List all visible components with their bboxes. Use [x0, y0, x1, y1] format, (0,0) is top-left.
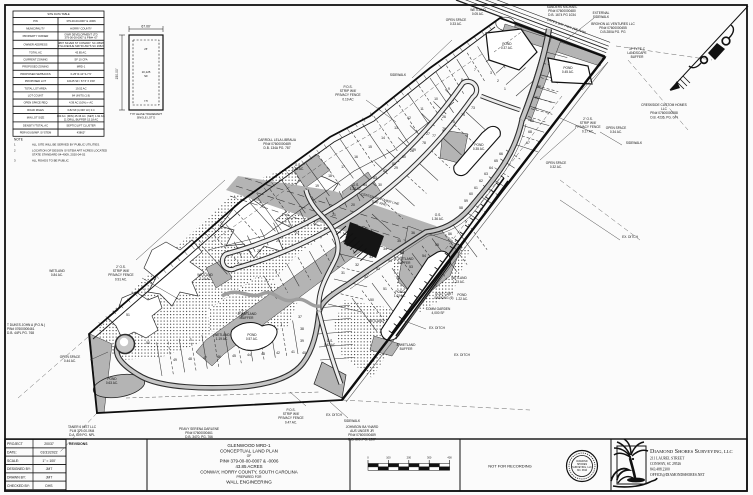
svg-text:WALL ENGINEERING: WALL ENGINEERING — [226, 480, 272, 485]
svg-text:61: 61 — [474, 186, 478, 190]
svg-text:0.37 AC.: 0.37 AC. — [501, 46, 513, 50]
svg-text:SCALE:: SCALE: — [7, 459, 19, 463]
svg-text:SEPTIC/LIFT CLUSTER: SEPTIC/LIFT CLUSTER — [66, 124, 95, 128]
svg-text:52: 52 — [396, 276, 400, 280]
svg-text:84 UNITS (1.9): 84 UNITS (1.9) — [72, 94, 90, 98]
svg-text:51: 51 — [126, 313, 130, 317]
svg-text:0.47 AC.: 0.47 AC. — [285, 420, 297, 424]
svg-text:54: 54 — [422, 254, 426, 258]
svg-text:46: 46 — [217, 355, 221, 359]
svg-text:2: 2 — [497, 79, 499, 83]
svg-text:SITE DATA TABLE: SITE DATA TABLE — [47, 12, 70, 16]
svg-text:EX. DITCH: EX. DITCH — [622, 235, 638, 239]
svg-text:82: 82 — [383, 169, 387, 173]
svg-text:47: 47 — [203, 356, 207, 360]
svg-text:PROPOSED LOT: PROPOSED LOT — [25, 79, 47, 83]
svg-text:69: 69 — [530, 119, 534, 123]
svg-text:0.84 AC.: 0.84 AC. — [51, 273, 63, 277]
svg-text:20037: 20037 — [44, 442, 54, 446]
svg-text:29: 29 — [394, 166, 398, 170]
svg-text:SF: SF — [144, 74, 148, 78]
svg-text:15: 15 — [368, 145, 372, 149]
svg-text:84: 84 — [363, 183, 367, 187]
svg-text:63: 63 — [484, 172, 488, 176]
svg-text:80: 80 — [402, 155, 406, 159]
svg-text:48: 48 — [188, 357, 192, 361]
svg-text:14: 14 — [381, 136, 385, 140]
svg-text:53: 53 — [376, 267, 380, 271]
svg-text:12: 12 — [407, 116, 411, 120]
svg-text:45: 45 — [232, 354, 236, 358]
svg-text:D.A. 609 PG. NPL: D.A. 609 PG. NPL — [69, 433, 95, 437]
svg-text:22: 22 — [313, 221, 317, 225]
svg-text:D.B. 44PL PG. 768: D.B. 44PL PG. 768 — [7, 331, 34, 335]
svg-text:PARKING (6): PARKING (6) — [435, 296, 454, 300]
svg-text:211 LAUREL STREET: 211 LAUREL STREET — [650, 457, 685, 461]
svg-text:0.42 AC.: 0.42 AC. — [324, 343, 336, 347]
svg-text:0.33 AC.: 0.33 AC. — [450, 22, 462, 26]
svg-text:0.17 AC.: 0.17 AC. — [582, 129, 594, 133]
svg-text:0.78 AC.: 0.78 AC. — [292, 167, 304, 171]
svg-text:77: 77 — [432, 134, 436, 138]
svg-text:18: 18 — [328, 174, 332, 178]
svg-text:64: 64 — [489, 166, 493, 170]
svg-text:CONWAY, HORRY COUNTY, SOUTH CA: CONWAY, HORRY COUNTY, SOUTH CAROLINA — [200, 470, 298, 475]
svg-text:36: 36 — [411, 231, 415, 235]
svg-text:60: 60 — [469, 192, 473, 196]
svg-text:LOT COUNT: LOT COUNT — [28, 94, 44, 98]
svg-text:43: 43 — [261, 352, 265, 356]
svg-text:843.488.2300: 843.488.2300 — [650, 468, 670, 472]
svg-text:68: 68 — [528, 130, 532, 134]
svg-text:0.44 AC.: 0.44 AC. — [64, 359, 76, 363]
svg-text:PIN: PIN — [33, 19, 38, 23]
svg-text:24: 24 — [276, 239, 280, 243]
svg-text:56: 56 — [448, 232, 452, 236]
svg-text:1.22 AC.: 1.22 AC. — [456, 297, 468, 301]
svg-text:0.05 AC.: 0.05 AC. — [472, 12, 484, 16]
svg-text:3: 3 — [490, 71, 492, 75]
svg-text:67.00': 67.00' — [141, 25, 150, 29]
svg-text:19: 19 — [315, 184, 319, 188]
svg-text:50: 50 — [370, 298, 374, 302]
svg-text:TYP LEASE TRADEMART: TYP LEASE TRADEMART — [130, 112, 162, 116]
svg-text:SIDEWALK: SIDEWALK — [390, 73, 407, 77]
svg-text:PROPOSED SETBACKS: PROPOSED SETBACKS — [20, 72, 51, 76]
svg-text:CONCEPTUAL LAND PLAN: CONCEPTUAL LAND PLAN — [220, 449, 278, 454]
svg-text:17: 17 — [341, 165, 345, 169]
svg-text:11: 11 — [420, 107, 424, 111]
svg-text:PROJECT: PROJECT — [7, 442, 23, 446]
svg-text:ALL ROADS TO BE PUBLIC: ALL ROADS TO BE PUBLIC — [32, 158, 69, 162]
svg-text:DRAWN BY:: DRAWN BY: — [7, 475, 26, 479]
svg-text:D.B. 4236, PG. 0/H: D.B. 4236, PG. 0/H — [650, 115, 678, 119]
svg-text:4.39 AC (10%) + AC: 4.39 AC (10%) + AC — [69, 101, 93, 105]
svg-text:TOTAL AC: TOTAL AC — [29, 50, 42, 54]
svg-text:59: 59 — [464, 199, 468, 203]
svg-text:ALL SITE WILL BE SERVED BY PUB: ALL SITE WILL BE SERVED BY PUBLIC UTILIT… — [32, 142, 100, 146]
svg-text:SIDEWALK: SIDEWALK — [344, 419, 361, 423]
svg-text:25: 25 — [257, 249, 261, 253]
svg-text:10: 10 — [434, 97, 438, 101]
svg-text:DESIGNED BY:: DESIGNED BY: — [7, 467, 31, 471]
svg-text:379-00-00-0007 & PIN# -07: 379-00-00-0007 & PIN# -07 — [64, 36, 98, 40]
svg-text:JMT: JMT — [46, 475, 53, 479]
svg-text:300: 300 — [427, 456, 432, 460]
svg-text:PIN# 379-00-00-0007 & -0006: PIN# 379-00-00-0007 & -0006 — [220, 459, 279, 464]
svg-text:0.45 AC.: 0.45 AC. — [562, 70, 574, 74]
svg-text:65: 65 — [494, 159, 498, 163]
svg-text:21: 21 — [332, 213, 336, 217]
svg-text:WETLAND: WETLAND — [368, 319, 384, 323]
svg-text:D.B. 134A PG. 787: D.B. 134A PG. 787 — [264, 146, 291, 150]
svg-text:50: 50 — [146, 341, 150, 345]
svg-text:SIDEWALK: SIDEWALK — [626, 141, 643, 145]
svg-text:38: 38 — [300, 327, 304, 331]
svg-text:42: 42 — [276, 351, 280, 355]
svg-text:1.02 AC.: 1.02 AC. — [394, 294, 406, 298]
svg-text:1.23 AC.: 1.23 AC. — [453, 280, 465, 284]
svg-text:CURRENT ZONING: CURRENT ZONING — [23, 58, 47, 62]
svg-text:44: 44 — [247, 353, 251, 357]
svg-text:-2.10 AC.: -2.10 AC. — [198, 277, 211, 281]
svg-text:OFFICE@DIAMONDSHORES.NET: OFFICE@DIAMONDSHORES.NET — [650, 473, 706, 477]
svg-text:0.19 AC: 0.19 AC — [342, 97, 354, 101]
svg-text:66: 66 — [499, 152, 503, 156]
svg-text:49: 49 — [173, 358, 177, 362]
svg-text:BUFFER: BUFFER — [400, 347, 413, 351]
svg-text:78: 78 — [422, 141, 426, 145]
svg-text:NO. 3810: NO. 3810 — [577, 469, 588, 472]
svg-text:0.57 AC.: 0.57 AC. — [246, 337, 258, 341]
svg-text:55: 55 — [435, 243, 439, 247]
svg-text:STATE STANDARD 04-4009, 2020-0: STATE STANDARD 04-4009, 2020-04-02 — [32, 152, 86, 156]
svg-text:43.85 ACRES: 43.85 ACRES — [235, 464, 262, 469]
svg-text:1.37 AC.: 1.37 AC. — [350, 187, 362, 191]
svg-text:ROAD MILES: ROAD MILES — [27, 108, 44, 112]
svg-text:DHS: DHS — [45, 484, 53, 488]
svg-text:73: 73 — [471, 106, 475, 110]
svg-text:10125 SF / 67.5' X 150': 10125 SF / 67.5' X 150' — [67, 79, 95, 83]
svg-text:53: 53 — [409, 265, 413, 269]
svg-text:0.82 MI (4,330' LF) 0.4: 0.82 MI (4,330' LF) 0.4 — [67, 108, 95, 112]
svg-text:26: 26 — [442, 115, 446, 119]
svg-text:400: 400 — [447, 456, 452, 460]
svg-text:51: 51 — [383, 287, 387, 291]
svg-text:TOTAL LOT AREA: TOTAL LOT AREA — [24, 86, 46, 90]
svg-text:OF: OF — [247, 454, 251, 458]
svg-text:MIN LOT SIZE: MIN LOT SIZE — [27, 116, 45, 120]
svg-text:100: 100 — [386, 456, 391, 460]
svg-text:200: 200 — [407, 456, 412, 460]
svg-text:39: 39 — [300, 339, 304, 343]
svg-text:33: 33 — [369, 255, 373, 259]
svg-text:32: 32 — [355, 263, 359, 267]
svg-text:1" = 100': 1" = 100' — [42, 459, 56, 463]
svg-text:150.00': 150.00' — [115, 68, 119, 79]
svg-text:DENSITY/TOTAL AC: DENSITY/TOTAL AC — [23, 124, 48, 128]
svg-text:PROPOSED ZONING: PROPOSED ZONING — [22, 65, 48, 69]
svg-text:EX. DITCH: EX. DITCH — [454, 353, 470, 357]
svg-text:0.32 AC.: 0.32 AC. — [550, 165, 562, 169]
svg-text:41: 41 — [291, 350, 295, 354]
svg-text:1.36 AC.: 1.36 AC. — [432, 217, 444, 221]
svg-text:25': 25' — [144, 47, 148, 51]
svg-text:D.B. 1674 PG 1034: D.B. 1674 PG 1034 — [548, 13, 576, 17]
svg-text:40: 40 — [302, 351, 306, 355]
svg-text:7: 7 — [474, 68, 476, 72]
svg-text:9: 9 — [448, 87, 450, 91]
svg-text:58: 58 — [459, 206, 463, 210]
svg-text:CHECKED BY:: CHECKED BY: — [7, 484, 30, 488]
svg-text:REVISIONS: REVISIONS — [69, 442, 88, 446]
svg-text:67: 67 — [526, 141, 530, 145]
svg-text:PROPERTY OWNER: PROPERTY OWNER — [23, 34, 49, 38]
svg-text:30: 30 — [378, 183, 382, 187]
svg-text:GLENWOOD MRD-1: GLENWOOD MRD-1 — [227, 443, 271, 448]
svg-text:43862*: 43862* — [77, 131, 86, 135]
svg-text:0.91 AC.: 0.91 AC. — [115, 277, 127, 281]
svg-text:31: 31 — [341, 271, 345, 275]
svg-text:MRD-1: MRD-1 — [77, 65, 86, 69]
svg-text:71: 71 — [535, 96, 539, 100]
svg-text:27: 27 — [426, 132, 430, 136]
svg-text:23: 23 — [295, 231, 299, 235]
svg-text:7.5': 7.5' — [144, 99, 149, 103]
svg-text:SIDEWALK: SIDEWALK — [593, 15, 610, 19]
svg-text:20: 20 — [351, 203, 355, 207]
svg-text:75: 75 — [451, 120, 455, 124]
svg-text:16: 16 — [354, 155, 358, 159]
svg-text:SF 10 CFA: SF 10 CFA — [74, 58, 87, 62]
svg-text:PREPARED FOR: PREPARED FOR — [237, 475, 263, 479]
svg-text:62: 62 — [479, 179, 483, 183]
svg-text:1: 1 — [504, 87, 506, 91]
svg-text:BUFFER: BUFFER — [631, 55, 644, 59]
svg-text:EX. DITCH: EX. DITCH — [326, 413, 342, 417]
svg-text:35: 35 — [397, 239, 401, 243]
svg-text:79: 79 — [412, 148, 416, 152]
svg-text:54: 54 — [388, 259, 392, 263]
svg-text:4TH AVENUE SMYR HWYS SC 29527: 4TH AVENUE SMYR HWYS SC 29527 — [58, 44, 105, 48]
svg-text:0.35 AC.: 0.35 AC. — [473, 147, 485, 151]
svg-text:PERVIOUS/IMP. SYSTEM: PERVIOUS/IMP. SYSTEM — [20, 131, 52, 135]
svg-text:DATE:: DATE: — [7, 450, 17, 454]
svg-text:43.85 AC.: 43.85 AC. — [75, 50, 87, 54]
svg-text:74: 74 — [461, 113, 465, 117]
svg-text:F-25' R-10' S-7.5': F-25' R-10' S-7.5' — [71, 72, 92, 76]
svg-text:70: 70 — [533, 107, 537, 111]
svg-text:OWNER ADDRESS: OWNER ADDRESS — [24, 43, 48, 47]
svg-text:379-00-00-0007 & -0006: 379-00-00-0007 & -0006 — [66, 19, 96, 23]
svg-text:13: 13 — [394, 126, 398, 130]
svg-text:83: 83 — [373, 176, 377, 180]
svg-text:8: 8 — [461, 78, 463, 82]
svg-text:11 DRILL BUFFER 15.18 AC: 11 DRILL BUFFER 15.18 AC — [64, 117, 98, 121]
svg-text:4,000 SF: 4,000 SF — [432, 311, 445, 315]
svg-text:55: 55 — [400, 251, 404, 255]
svg-text:MUNICIPALITY: MUNICIPALITY — [26, 26, 45, 30]
svg-text:81: 81 — [392, 162, 396, 166]
svg-text:OPEN SPACE REQ: OPEN SPACE REQ — [24, 101, 48, 105]
svg-text:HORRY COUNTY: HORRY COUNTY — [70, 26, 92, 30]
svg-text:34: 34 — [383, 247, 387, 251]
svg-text:SINGLE LOT D: SINGLE LOT D — [137, 116, 156, 120]
svg-text:1.19 AC.: 1.19 AC. — [216, 337, 228, 341]
svg-text:01/31/2022: 01/31/2022 — [41, 450, 58, 454]
svg-text:NOTE: NOTE — [14, 137, 23, 141]
svg-text:0.34 AC.: 0.34 AC. — [610, 130, 622, 134]
svg-text:19.52 AC: 19.52 AC — [75, 86, 86, 90]
svg-text:37: 37 — [298, 315, 302, 319]
svg-text:EX. DITCH: EX. DITCH — [429, 326, 445, 330]
svg-text:52: 52 — [364, 275, 368, 279]
svg-text:JMT: JMT — [46, 467, 53, 471]
svg-text:D.B.280A PG. PG: D.B.280A PG. PG — [600, 30, 626, 34]
svg-text:NOT FOR RECORDING: NOT FOR RECORDING — [488, 464, 531, 469]
svg-text:76: 76 — [442, 127, 446, 131]
svg-text:0.63 AC.: 0.63 AC. — [106, 381, 118, 385]
svg-text:72: 72 — [537, 85, 541, 89]
